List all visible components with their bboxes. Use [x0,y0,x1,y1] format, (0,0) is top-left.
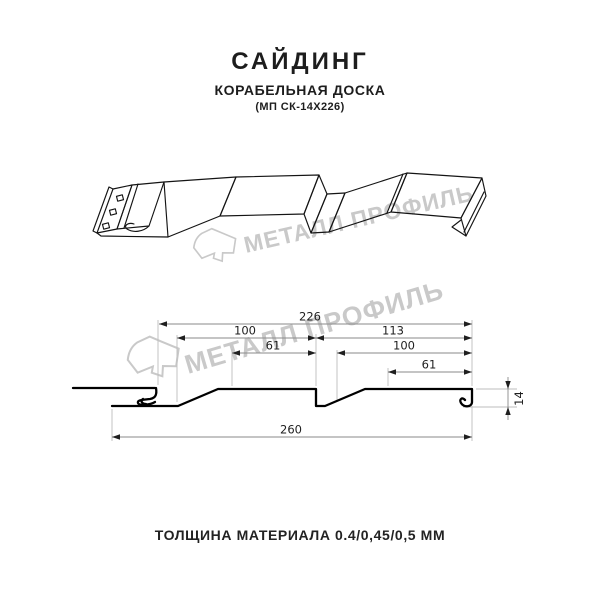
dim-label-100-right: 100 [393,339,415,353]
dim-label-14: 14 [512,391,526,406]
material-thickness-note: ТОЛЩИНА МАТЕРИАЛА 0.4/0,45/0,5 ММ [0,527,600,543]
catalog-image: САЙДИНГ КОРАБЕЛЬНАЯ ДОСКА (МП СК-14Х226)… [0,0,600,600]
dim-label-113: 113 [382,324,404,338]
watermark-text: МЕТАЛЛ ПРОФИЛЬ [241,180,476,258]
panel-bottom-edge [97,233,168,237]
dimension-arrows [112,321,511,439]
watermark-3d: МЕТАЛЛ ПРОФИЛЬ [192,180,477,265]
profile-outline [73,388,472,406]
receiver-fold-crease [124,184,138,228]
receiver-fold [117,182,164,229]
lock-curl [138,388,156,405]
dim-label-226: 226 [299,310,321,324]
dim-label-260: 260 [280,423,302,437]
slope1-face [164,177,236,237]
nail-holes [102,195,123,229]
panel-profile [112,389,472,406]
metall-profil-logo-icon [125,333,182,381]
panel1-top-face [220,175,319,216]
dim-label-61-right: 61 [422,358,437,372]
technical-drawing: МЕТАЛЛ ПРОФИЛЬ [0,0,600,600]
metall-profil-logo-icon [192,226,239,265]
watermark-text: МЕТАЛЛ ПРОФИЛЬ [181,275,447,380]
dim-label-100-left: 100 [234,324,256,338]
dim-label-61-left: 61 [266,339,281,353]
